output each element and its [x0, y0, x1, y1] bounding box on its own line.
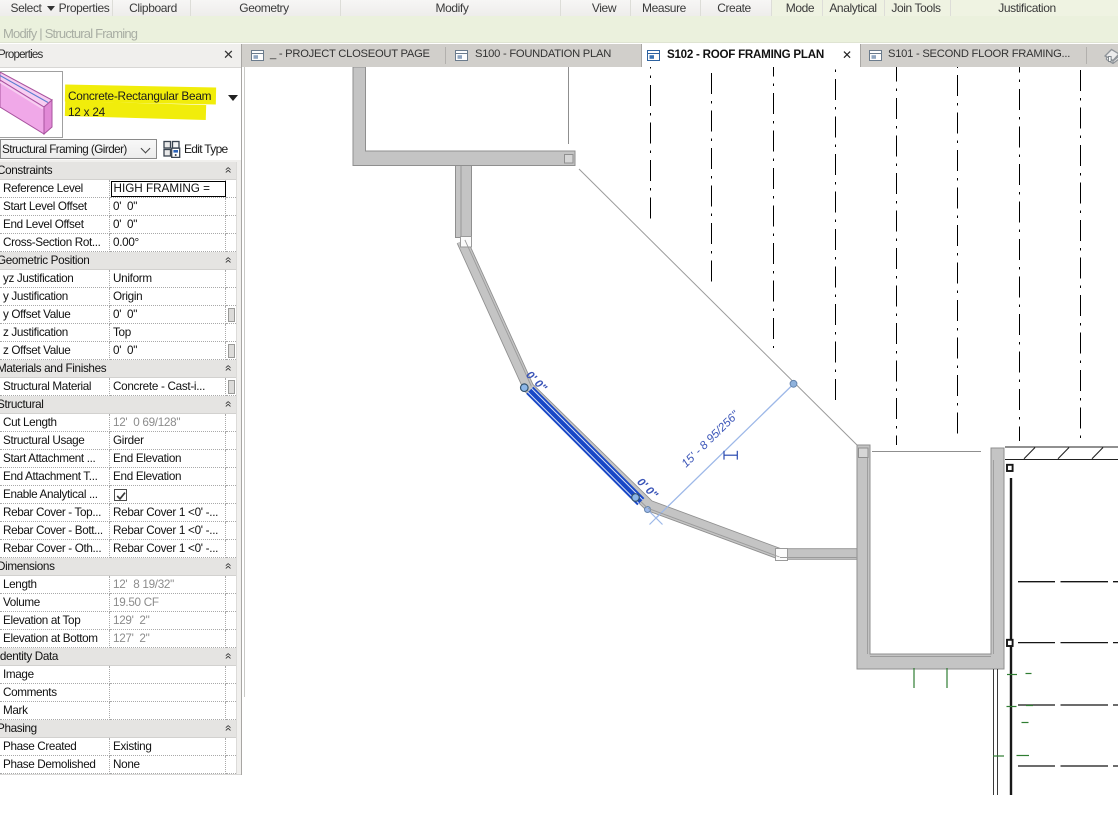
svg-text:15' - 8 95/256": 15' - 8 95/256"	[679, 408, 742, 470]
